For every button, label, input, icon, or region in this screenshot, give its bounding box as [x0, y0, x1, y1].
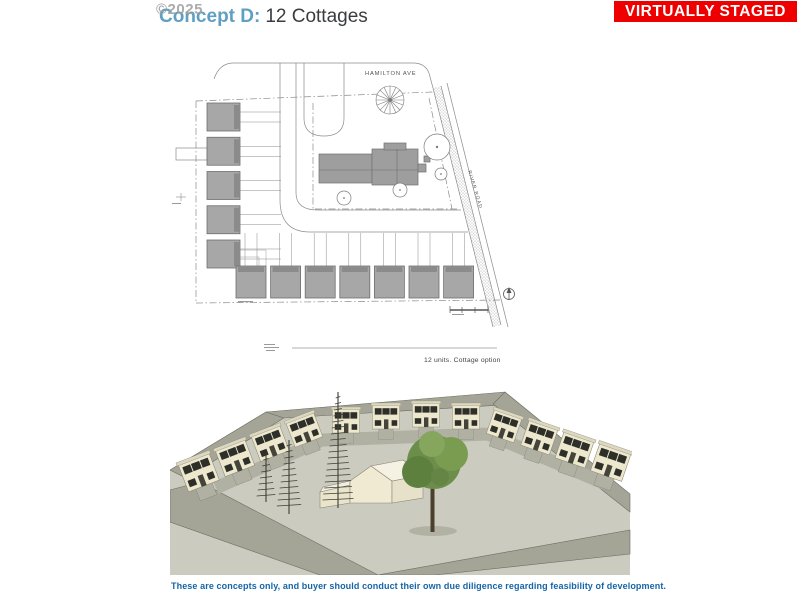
plan-scale-widget — [450, 306, 488, 315]
driveway-loop — [304, 63, 344, 136]
plan-cottage — [444, 233, 474, 298]
plan-cottage — [207, 137, 281, 165]
connector-line — [240, 257, 259, 266]
plan-caption: 12 units. Cottage option — [424, 357, 501, 364]
site-plan-drawing: HAMILTON AVE RIVER ROAD 12 units. Cottag… — [160, 42, 530, 372]
plan-cottage — [207, 103, 281, 131]
rendering-3d — [170, 382, 632, 575]
plan-cottage — [409, 233, 439, 298]
plan-cottage — [305, 233, 335, 298]
plan-bottom-cottages — [236, 233, 474, 298]
plan-cottage — [207, 206, 281, 234]
north-arrow — [504, 287, 515, 300]
listing-image: ©2025 Concept D:12 Cottages VIRTUALLY ST… — [0, 0, 800, 600]
existing-house — [319, 143, 430, 185]
connector-line — [240, 250, 266, 266]
spoked-tree-symbol — [376, 86, 404, 114]
plan-cottage — [374, 233, 404, 298]
plan-cottage — [340, 233, 370, 298]
plan-cottage — [207, 240, 281, 268]
plan-cottage — [271, 233, 301, 298]
left-driveway-stub — [176, 148, 207, 160]
plan-left-cottages — [207, 103, 281, 268]
copyright-watermark: ©2025 — [156, 1, 203, 18]
title-main: 12 Cottages — [265, 6, 367, 27]
scale-bar — [264, 344, 497, 351]
virtually-staged-badge: VIRTUALLY STAGED — [614, 1, 797, 22]
plan-cottage — [236, 233, 266, 298]
plan-cottage — [207, 172, 281, 200]
hamilton-ave-label: HAMILTON AVE — [365, 71, 416, 77]
disclaimer-text: These are concepts only, and buyer shoul… — [171, 581, 771, 591]
